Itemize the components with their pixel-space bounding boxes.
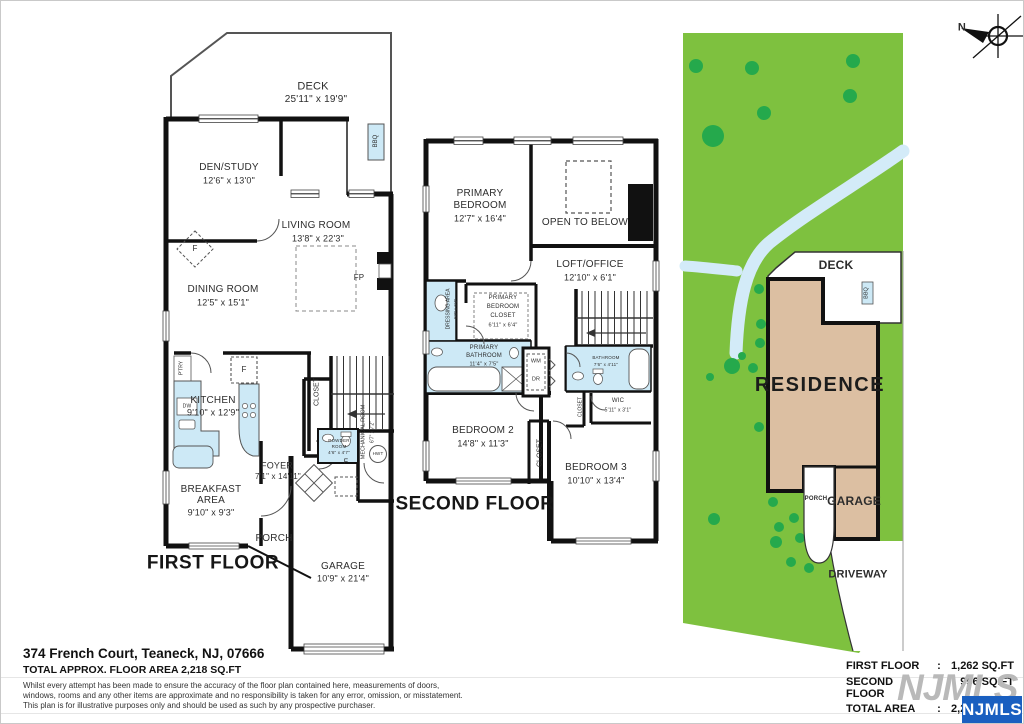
breakfast-label-2: AREA [197,496,225,506]
site-residence-label: RESIDENCE [755,375,885,395]
dryer-label: DR [532,377,540,383]
den-study-label: DEN/STUDY [199,163,259,173]
closet-label-ff: CLOSET [314,378,321,406]
disclaimer: Whilst every attempt has been made to en… [23,681,463,710]
disclaimer-line-3: This plan is for illustrative purposes o… [23,701,463,711]
laundry-closet [523,348,549,396]
dishwasher-label: DW [183,405,192,410]
water-heater-label: HWT [373,452,384,457]
closet-bedroom3-label: CLOSET [537,439,544,467]
kitchen-dims: 9'10" x 12'9" [187,409,239,418]
mechanical-room-label: MECHANICAL ROOM [361,405,367,460]
primary-bedroom-label-1: PRIMARY [457,189,504,199]
den-study-dims: 12'6" x 13'0" [203,177,255,186]
first-floor-title: FIRST FLOOR [147,554,279,573]
primary-bathroom-label-1: PRIMARY [470,345,499,351]
breakfast-dims: 9'10" x 9'3" [188,509,235,518]
washer-label: WM [531,359,541,365]
primary-bedroom-dims: 12'7" x 16'4" [454,215,506,224]
wic-dims: 5'11" x 3'1" [605,409,632,414]
open-to-below-skylight [566,161,611,213]
bedroom2-dims: 14'8" x 11'3" [457,440,508,449]
primary-bathroom-label-2: BATHROOM [466,353,502,359]
kitchen-label: KITCHEN [190,396,235,406]
site-garage-label: GARAGE [827,495,881,507]
footer-info: 374 French Court, Teaneck, NJ, 07666 TOT… [23,646,463,710]
breakfast-label-1: BREAKFAST [181,485,242,495]
dining-room-label: DINING ROOM [187,285,258,295]
loft-office-dims: 12'10" x 6'1" [564,274,616,283]
chimney-block [628,184,653,241]
primary-bathroom-dims: 11'4" x 7'5" [469,362,498,368]
garage-dims: 10'9" x 21'4" [317,575,369,584]
hall-bathroom-fixtures [566,346,651,391]
disclaimer-line-1: Whilst every attempt has been made to en… [23,681,463,691]
living-room-label: LIVING ROOM [282,221,351,231]
primary-closet-dims: 6'11" x 6'4" [488,323,517,329]
site-bbq-label: BBQ [864,287,870,299]
njmls-logo: NJMLS [962,696,1022,723]
site-porch-label: PORCH [805,496,828,502]
dressing-area-dims: 5'3" x 6'4" [454,299,459,319]
total-floor-area: TOTAL APPROX. FLOOR AREA 2,218 SQ.FT [23,664,463,676]
foyer-dims: 7'1" x 14'11" [255,473,301,481]
fireplace-shape [377,252,393,290]
primary-bedroom-label-2: BEDROOM [453,201,506,211]
second-floor-stairs [576,291,653,344]
property-address: 374 French Court, Teaneck, NJ, 07666 [23,646,463,661]
foyer-tilted-closet [296,465,333,502]
second-floor-plan-drawing [416,131,666,551]
living-room-dims: 13'8" x 22'3" [292,235,344,244]
site-porch [804,467,834,563]
garage-label-ff: GARAGE [321,562,365,572]
powder-room-label-2: ROOM [332,445,347,450]
mechanical-room-dims: 6'7" x 7'2" [371,421,376,443]
breakfast-table [173,446,213,468]
wic-label: WIC [612,398,624,404]
ceiling-fan-icon: F [192,245,197,253]
powder-room-label-1: POWDER [328,439,349,444]
dining-room-dims: 12'5" x 15'1" [197,299,249,308]
bbq-label-ff: BBQ [373,135,379,148]
compass-rose [951,4,1024,64]
site-driveway-label: DRIVEWAY [828,570,887,581]
dressing-area-label: DRESSING AREA [447,289,452,330]
floor-plan-page: N DECK 25'11" x 19'9" DEN/STUDY 12'6" x … [0,0,1024,724]
pantry-label: P'TRY [180,361,185,375]
open-to-below-label: OPEN TO BELOW [542,218,628,228]
deck-label: DECK [297,82,328,93]
loft-office-label: LOFT/OFFICE [556,260,623,270]
primary-closet-label-1: PRIMARY [489,295,518,301]
deck-dims: 25'11" x 19'9" [285,95,347,105]
closet-hall-label: CLOSET [579,397,584,417]
site-plan-drawing [676,26,911,661]
fridge-icon: F [241,366,246,374]
primary-closet-label-3: CLOSET [490,313,515,319]
stream-branch [685,266,737,271]
disclaimer-line-2: windows, rooms and any other items are a… [23,691,463,701]
site-deck-label: DECK [819,259,854,271]
powder-room-dims: 4'6" x 4'7" [328,451,350,456]
hall-bathroom-dims: 7'6" x 4'11" [594,363,618,368]
bedroom3-dims: 10'10" x 13'4" [567,477,624,486]
primary-closet-label-2: BEDROOM [487,304,519,310]
foyer-label: FOYER [261,462,293,471]
second-floor-title: SECOND FLOOR [395,495,554,514]
foyer-closet-icon: F [344,459,348,466]
bedroom2-label: BEDROOM 2 [452,426,514,436]
compass-north-label: N [958,23,966,34]
dressing-area-fixtures [426,281,456,341]
hall-bathroom-label: BATHROOM [592,356,619,361]
fireplace-label: FP [354,274,365,282]
porch-label-ff: PORCH [255,534,292,544]
bedroom3-label: BEDROOM 3 [565,463,627,473]
